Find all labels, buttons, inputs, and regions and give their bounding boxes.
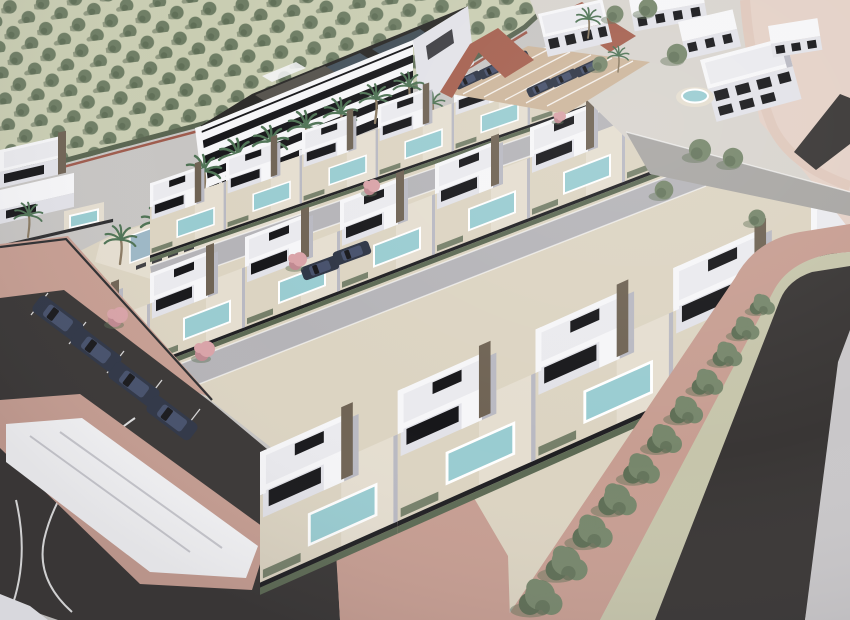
render-canvas (0, 0, 850, 620)
render-image (0, 0, 850, 620)
communal-round-pool (682, 90, 708, 103)
